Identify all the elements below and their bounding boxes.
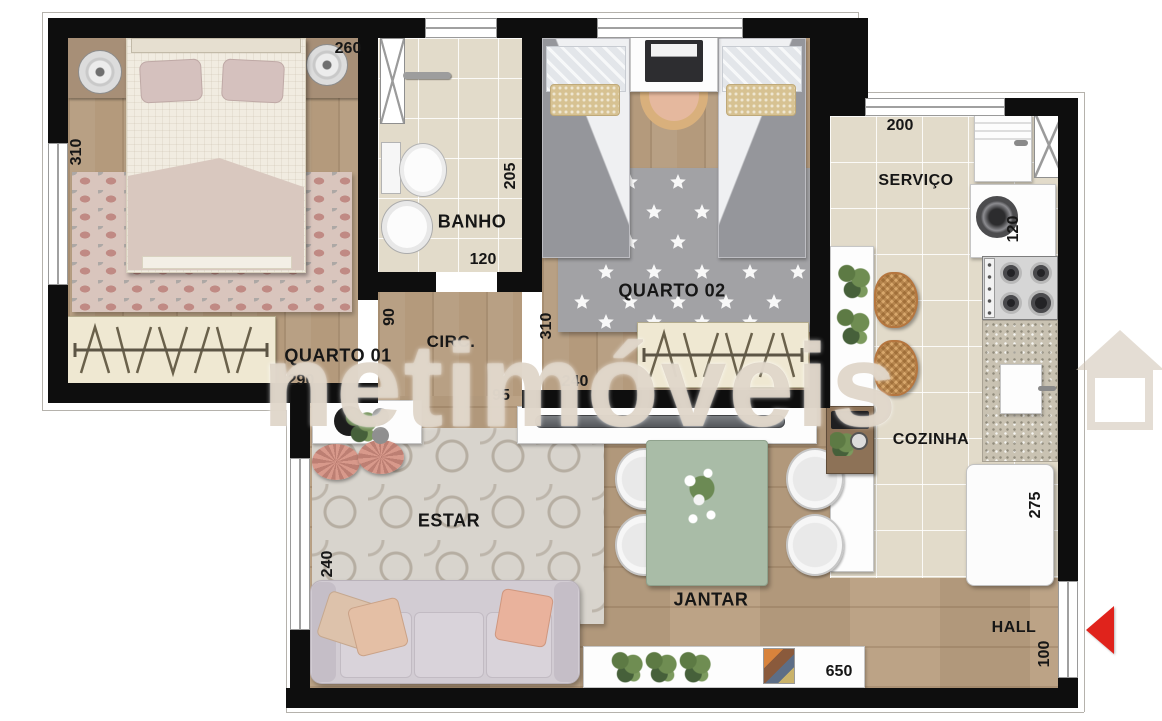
burner <box>1000 262 1022 284</box>
burner <box>1000 292 1022 314</box>
hangers-icon <box>638 323 808 387</box>
room-label-banho: BANHO <box>438 212 507 233</box>
quarto01-wardrobe <box>66 316 276 384</box>
room-label-circ: CIRC. <box>427 332 476 352</box>
wall <box>830 98 865 116</box>
sideboard-art <box>763 648 795 684</box>
sideboard-plant <box>678 648 712 684</box>
plan-outline <box>286 410 287 712</box>
fridge <box>966 464 1054 586</box>
console-plate <box>372 408 389 425</box>
bed-pillow <box>221 58 285 103</box>
bedside-lamp-left <box>78 50 122 94</box>
sideboard-plant <box>610 648 644 684</box>
dim-living-width: 650 <box>826 663 853 681</box>
room-label-quarto01: QUARTO 01 <box>284 346 391 367</box>
cabinet-decor <box>850 432 868 450</box>
room-label-cozinha: COZINHA <box>893 431 969 449</box>
sideboard-plant <box>644 648 678 684</box>
wall <box>522 390 828 408</box>
shell-pouf <box>312 444 360 480</box>
room-label-jantar: JANTAR <box>674 590 749 611</box>
wall <box>1058 116 1078 581</box>
entrance-door-opening <box>1058 581 1078 678</box>
dim-quarto02-depth: 310 <box>538 313 556 340</box>
cooktop-knob-strip <box>984 258 995 318</box>
dim-quarto01-depth: 310 <box>68 139 86 166</box>
room-label-estar: ESTAR <box>418 511 480 532</box>
wall <box>1005 98 1078 116</box>
floor-plan: QUARTO 01 BANHO CIRC. QUARTO 02 SERVIÇO … <box>0 0 1162 721</box>
sofa-arm <box>554 582 578 682</box>
dim-circ-width: 90 <box>381 308 399 326</box>
house-body-icon <box>1087 370 1153 430</box>
wall <box>48 18 68 143</box>
dim-quarto01-wardrobe: 290 <box>288 372 315 390</box>
quarto01-window <box>48 143 68 285</box>
quarto02-wardrobe <box>637 322 809 388</box>
dim-servico-width: 200 <box>887 117 914 135</box>
stool <box>874 340 918 396</box>
wall <box>358 272 436 292</box>
bed-headboard <box>131 38 301 53</box>
wall <box>522 18 542 292</box>
table-flowers <box>672 458 732 534</box>
burner <box>1028 290 1054 316</box>
wall <box>290 396 310 458</box>
bed-pillow <box>139 58 203 103</box>
plan-outline <box>42 12 858 13</box>
microwave <box>831 411 869 429</box>
burner <box>1030 262 1052 284</box>
dim-washer-width: 120 <box>1005 216 1023 243</box>
bed-foot-sheet <box>142 256 292 269</box>
room-label-servico: SERVIÇO <box>878 172 953 190</box>
estar-window <box>290 458 310 630</box>
quarto02-window <box>597 18 743 38</box>
gold-pillow <box>550 84 620 116</box>
dim-fridge-width: 275 <box>1027 492 1045 519</box>
plan-outline <box>286 712 1084 713</box>
plan-outline <box>42 12 43 410</box>
dim-estar-window: 240 <box>319 551 337 578</box>
toilet-bowl <box>399 143 447 197</box>
room-label-quarto02: QUARTO 02 <box>618 281 725 302</box>
counter-plant <box>836 258 872 302</box>
stool <box>874 272 918 328</box>
tv <box>535 415 785 428</box>
wall <box>497 18 597 38</box>
wall <box>286 688 1078 708</box>
dim-hall-width: 100 <box>1036 641 1054 668</box>
plan-outline <box>42 410 287 411</box>
laundry-tank <box>974 112 1032 182</box>
sofa-pillow <box>494 588 554 648</box>
shower-box <box>380 38 405 124</box>
dim-circ-passage: 95 <box>492 387 510 405</box>
dining-chair <box>786 514 844 576</box>
gold-pillow <box>726 84 796 116</box>
wall <box>810 18 830 408</box>
kitchen-sink <box>1000 364 1042 414</box>
dim-banho-width: 120 <box>470 251 497 269</box>
tank-faucet <box>1014 140 1028 146</box>
bathroom-sink <box>381 200 433 254</box>
wall <box>48 383 378 403</box>
entrance-arrow-icon <box>1086 606 1114 654</box>
wall <box>290 630 310 688</box>
toilet <box>381 142 401 194</box>
plan-outline <box>858 92 1084 93</box>
dim-quarto01-width: 260 <box>335 40 362 58</box>
dim-banho-depth: 205 <box>502 163 520 190</box>
house-roof-icon <box>1076 330 1162 370</box>
banho-window <box>425 18 497 38</box>
towel-bar <box>403 72 451 79</box>
hangers-icon <box>67 317 275 383</box>
laptop <box>645 40 703 82</box>
counter-plant <box>834 300 872 350</box>
kitchen-faucet <box>1038 386 1056 391</box>
wall <box>358 18 378 300</box>
dim-quarto02-wardrobe: 240 <box>562 373 589 391</box>
servico-window <box>865 98 1005 116</box>
sofa-cushion <box>414 612 484 678</box>
watermark-house-icon <box>1076 330 1162 430</box>
room-label-hall: HALL <box>992 619 1037 637</box>
console-plate <box>372 427 389 444</box>
